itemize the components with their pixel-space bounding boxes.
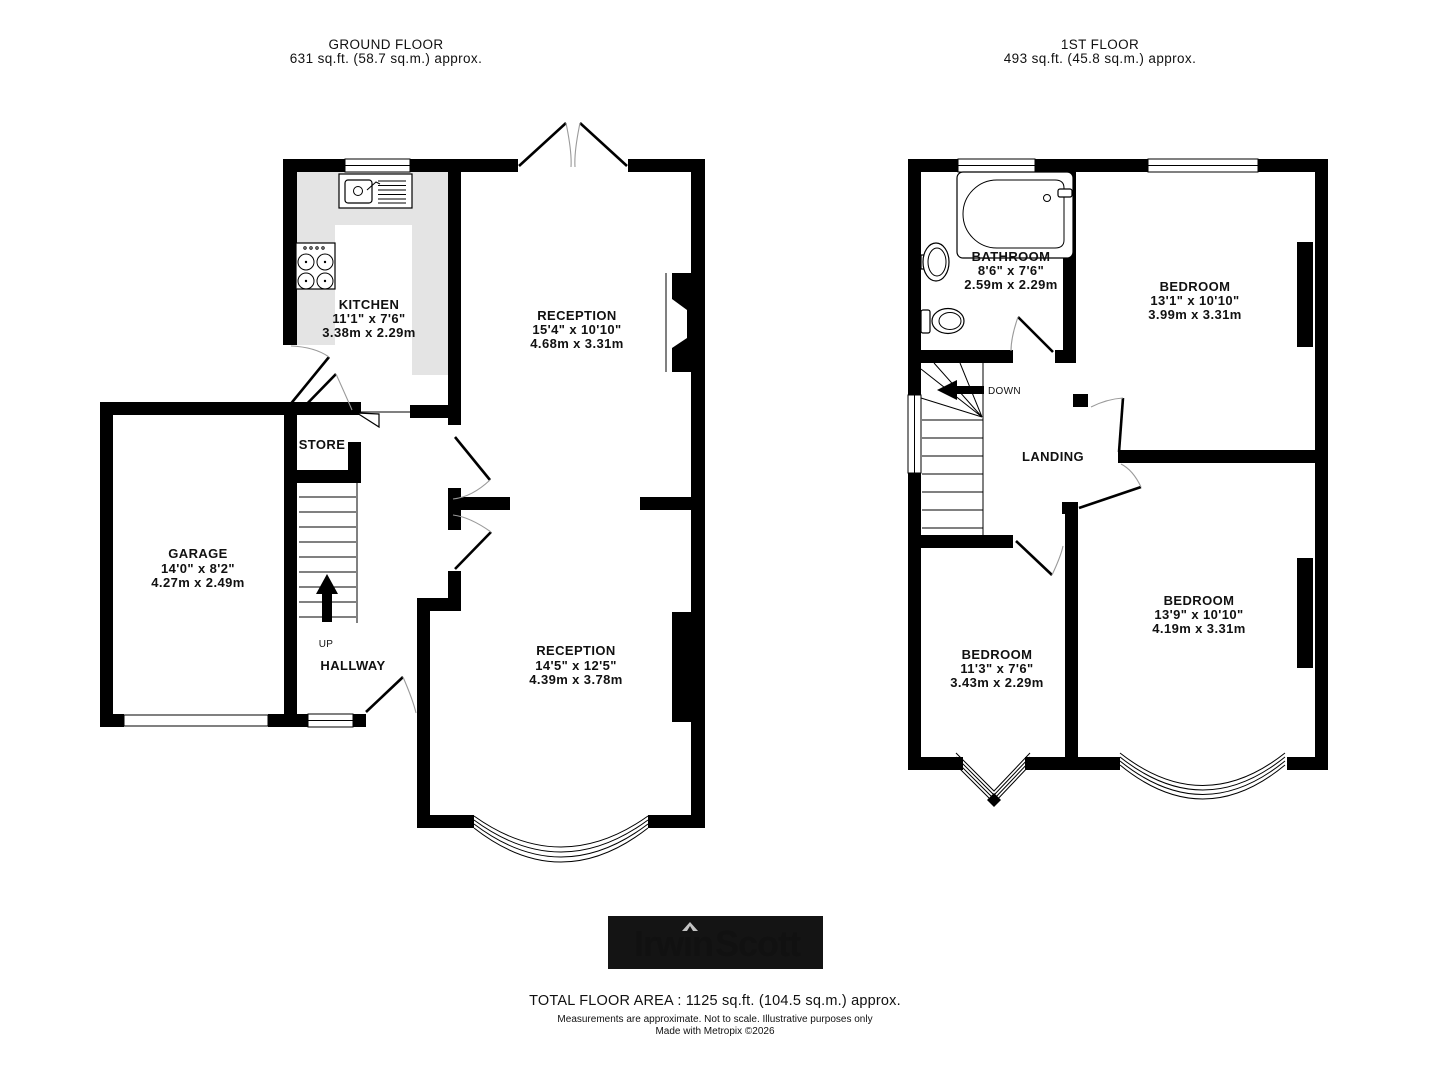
first-floor-title: 1ST FLOOR 493 sq.ft. (45.8 sq.m.) approx… <box>1004 37 1197 66</box>
hallway-label: HALLWAY <box>320 658 385 673</box>
reception1-label: RECEPTION 15'4" x 10'10" 4.68m x 3.31m <box>530 308 623 351</box>
garage-dims-m: 4.27m x 2.49m <box>151 575 244 590</box>
disclaimer-text: Measurements are approximate. Not to sca… <box>557 1014 872 1025</box>
floorplan-canvas: GROUND FLOOR 631 sq.ft. (58.7 sq.m.) app… <box>0 0 1430 1080</box>
bedroom3-label: BEDROOM 13'9" x 10'10" 4.19m x 3.31m <box>1152 593 1245 636</box>
ground-floor-name: GROUND FLOOR <box>328 37 443 52</box>
garage-door <box>124 715 268 726</box>
bedroom2-dims-m: 3.43m x 2.29m <box>950 675 1043 690</box>
toilet <box>921 309 964 334</box>
ground-floor-area: 631 sq.ft. (58.7 sq.m.) approx. <box>290 51 483 66</box>
reception1-dims-m: 4.68m x 3.31m <box>530 336 623 351</box>
reception2-dims-m: 4.39m x 3.78m <box>529 672 622 687</box>
reception2-name: RECEPTION <box>536 643 615 658</box>
bathroom-dims-m: 2.59m x 2.29m <box>964 277 1057 292</box>
cooker-hob <box>296 243 335 289</box>
first-floor-name: 1ST FLOOR <box>1061 37 1139 52</box>
bedroom1-dims-m: 3.99m x 3.31m <box>1148 307 1241 322</box>
reception1-dims-ft: 15'4" x 10'10" <box>532 322 621 337</box>
bedroom3-dims-m: 4.19m x 3.31m <box>1152 621 1245 636</box>
bedroom2-dims-ft: 11'3" x 7'6" <box>960 661 1033 676</box>
down-label: DOWN <box>988 386 1021 397</box>
bathroom-name: BATHROOM <box>972 249 1051 264</box>
garage-name: GARAGE <box>168 546 227 561</box>
stairs-down <box>921 362 984 535</box>
bay-window <box>474 816 648 862</box>
kitchen-dims-m: 3.38m x 2.29m <box>322 325 415 340</box>
stairs-up <box>299 483 357 623</box>
bedroom3-name: BEDROOM <box>1164 593 1235 608</box>
up-arrow-icon <box>316 574 338 622</box>
bedroom2-name: BEDROOM <box>962 647 1033 662</box>
reception2-label: RECEPTION 14'5" x 12'5" 4.39m x 3.78m <box>529 643 622 687</box>
wash-basin <box>921 243 949 281</box>
floorplan-page: GROUND FLOOR 631 sq.ft. (58.7 sq.m.) app… <box>0 0 1430 1080</box>
ground-floor-plan: KITCHEN 11'1" x 7'6" 3.38m x 2.29m RECEP… <box>100 123 705 862</box>
reception1-name: RECEPTION <box>537 308 616 323</box>
first-floor-plan: BATHROOM 8'6" x 7'6" 2.59m x 2.29m BEDRO… <box>908 159 1328 807</box>
garage-dims-ft: 14'0" x 8'2" <box>161 561 235 576</box>
kitchen-name: KITCHEN <box>339 297 400 312</box>
footer: TOTAL FLOOR AREA : 1125 sq.ft. (104.5 sq… <box>529 993 901 1037</box>
bedroom1-label: BEDROOM 13'1" x 10'10" 3.99m x 3.31m <box>1148 279 1241 322</box>
bedroom1-dims-ft: 13'1" x 10'10" <box>1150 293 1239 308</box>
up-label: UP <box>319 639 334 650</box>
kitchen-dims-ft: 11'1" x 7'6" <box>332 311 405 326</box>
kitchen-label: KITCHEN 11'1" x 7'6" 3.38m x 2.29m <box>322 297 415 340</box>
french-doors <box>519 123 627 167</box>
reception2-dims-ft: 14'5" x 12'5" <box>535 658 617 673</box>
bedroom2-label: BEDROOM 11'3" x 7'6" 3.43m x 2.29m <box>950 647 1043 690</box>
kitchen-sink <box>339 174 412 208</box>
ground-floor-title: GROUND FLOOR 631 sq.ft. (58.7 sq.m.) app… <box>290 37 483 66</box>
landing-label: LANDING <box>1022 449 1084 464</box>
total-floor-area: TOTAL FLOOR AREA : 1125 sq.ft. (104.5 sq… <box>529 993 901 1009</box>
ground-walls <box>100 159 705 828</box>
store-label: STORE <box>299 437 346 452</box>
bedroom3-dims-ft: 13'9" x 10'10" <box>1154 607 1243 622</box>
logo-text-irwin: Irwin <box>634 923 713 964</box>
agency-logo: Irwin Scott <box>608 916 823 969</box>
bay-window <box>956 753 1030 807</box>
garage-label: GARAGE 14'0" x 8'2" 4.27m x 2.49m <box>151 546 244 590</box>
bathtub <box>957 172 1073 258</box>
credit-text: Made with Metropix ©2026 <box>655 1026 775 1037</box>
down-arrow-icon <box>937 380 984 400</box>
first-floor-area: 493 sq.ft. (45.8 sq.m.) approx. <box>1004 51 1197 66</box>
bay-window <box>1120 753 1285 799</box>
bedroom1-name: BEDROOM <box>1160 279 1231 294</box>
logo-text-scott: Scott <box>715 923 801 964</box>
bathroom-label: BATHROOM 8'6" x 7'6" 2.59m x 2.29m <box>964 249 1057 292</box>
bathroom-dims-ft: 8'6" x 7'6" <box>978 263 1044 278</box>
